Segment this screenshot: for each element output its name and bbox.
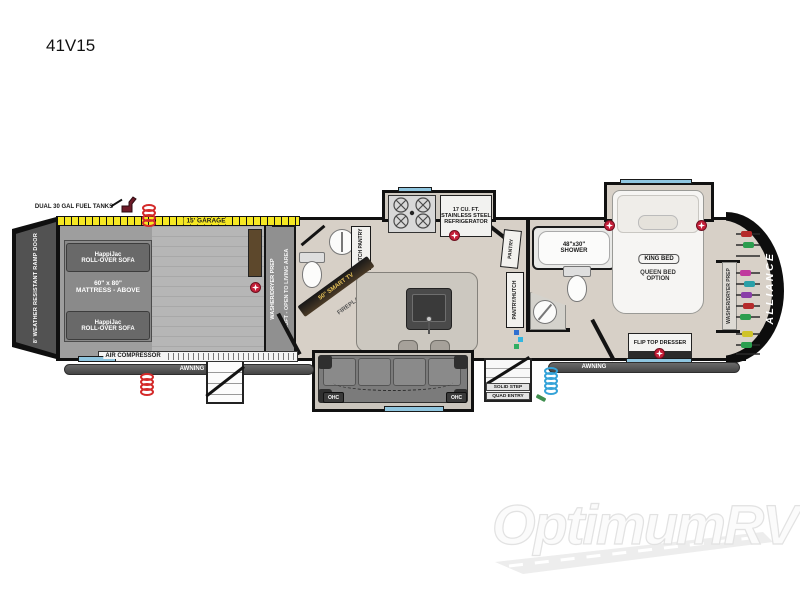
island-faucet-stem xyxy=(428,322,430,334)
stove xyxy=(388,195,436,233)
mattress-label: 60" x 80" MATTRESS - ABOVE xyxy=(64,280,152,294)
sofa-corner xyxy=(454,355,468,369)
half-bath-sink-faucet xyxy=(341,232,343,252)
utility-hookup-icon xyxy=(518,337,523,342)
sofa-corner xyxy=(318,355,332,369)
floorplan-page: 41V15 8' WEATHER RESISTANT RAMP DOOR 15'… xyxy=(0,0,800,600)
awning-left-label: AWNING xyxy=(180,366,205,372)
bath-left-wall xyxy=(526,220,530,332)
sofa-seat-line xyxy=(333,374,453,391)
king-bed-badge: KING BED xyxy=(638,247,679,265)
awning-right xyxy=(548,362,740,373)
bath-toilet xyxy=(567,275,587,302)
refrigerator: 17 CU. FT. STAINLESS STEEL REFRIGERATOR xyxy=(440,195,492,237)
ohc-badge: OHC xyxy=(446,392,467,403)
sofa-type-label: ROLL-OVER SOFA xyxy=(81,258,134,264)
quad-entry-label: QUAD ENTRY xyxy=(486,392,530,400)
shower-pan: 48"x30" SHOWER xyxy=(538,231,610,265)
window xyxy=(620,179,692,184)
window xyxy=(384,406,444,412)
happijac-sofa-top: HappiJac ROLL-OVER SOFA xyxy=(66,243,150,272)
queen-option-label: QUEEN BED OPTION xyxy=(614,270,702,282)
fuel-tanks-label: DUAL 30 GAL FUEL TANKS xyxy=(35,204,113,210)
happijac-sofa-bottom: HappiJac ROLL-OVER SOFA xyxy=(66,311,150,340)
garage-pocket-door xyxy=(248,229,262,277)
washer-dryer-garage-label: WASHER/DRYER PREP xyxy=(270,258,276,319)
half-bath-toilet xyxy=(302,261,322,288)
ohc-badge: OHC xyxy=(323,392,344,403)
pantry-hutch-label: PANTRY/HUTCH xyxy=(512,281,518,320)
spring-hose-icon xyxy=(142,207,156,227)
window xyxy=(398,187,432,192)
tv-hookup-icon xyxy=(449,230,460,241)
solid-step-label: SOLID STEP xyxy=(486,383,530,391)
hose-nozzle-icon xyxy=(536,394,547,402)
garage-tape-label: 15' GARAGE xyxy=(183,218,228,225)
washer-dryer-front-label: WASHER/DRYER PREP xyxy=(726,268,732,324)
fuel-pump-icon xyxy=(118,193,140,215)
burner-icon xyxy=(390,196,434,230)
watermark: OptimumRV xyxy=(492,492,798,557)
garage-tape-measure xyxy=(56,216,300,226)
water-hose-icon xyxy=(544,370,558,395)
page-title: 41V15 xyxy=(46,36,95,56)
tv-hookup-icon xyxy=(250,282,261,293)
loft-label: LOFT - OPEN TO LIVING AREA xyxy=(284,249,290,330)
ramp-door-label: 8' WEATHER RESISTANT RAMP DOOR xyxy=(33,233,39,343)
spring-hose-icon xyxy=(140,376,154,396)
alliance-brand: ALLIANCE xyxy=(764,251,776,324)
tv-hookup-icon xyxy=(654,348,665,359)
awning-right-label: AWNING xyxy=(582,364,607,370)
utility-hookup-icon xyxy=(514,344,519,349)
air-compressor-label: AIR COMPRESSOR xyxy=(103,353,162,359)
air-compressor-ticks xyxy=(168,353,294,360)
tv-hookup-icon xyxy=(604,220,615,231)
utility-hookup-icon xyxy=(514,330,519,335)
clothes-hangers-icon xyxy=(734,228,762,358)
bed-pillow xyxy=(638,215,678,230)
tv-hookup-icon xyxy=(696,220,707,231)
